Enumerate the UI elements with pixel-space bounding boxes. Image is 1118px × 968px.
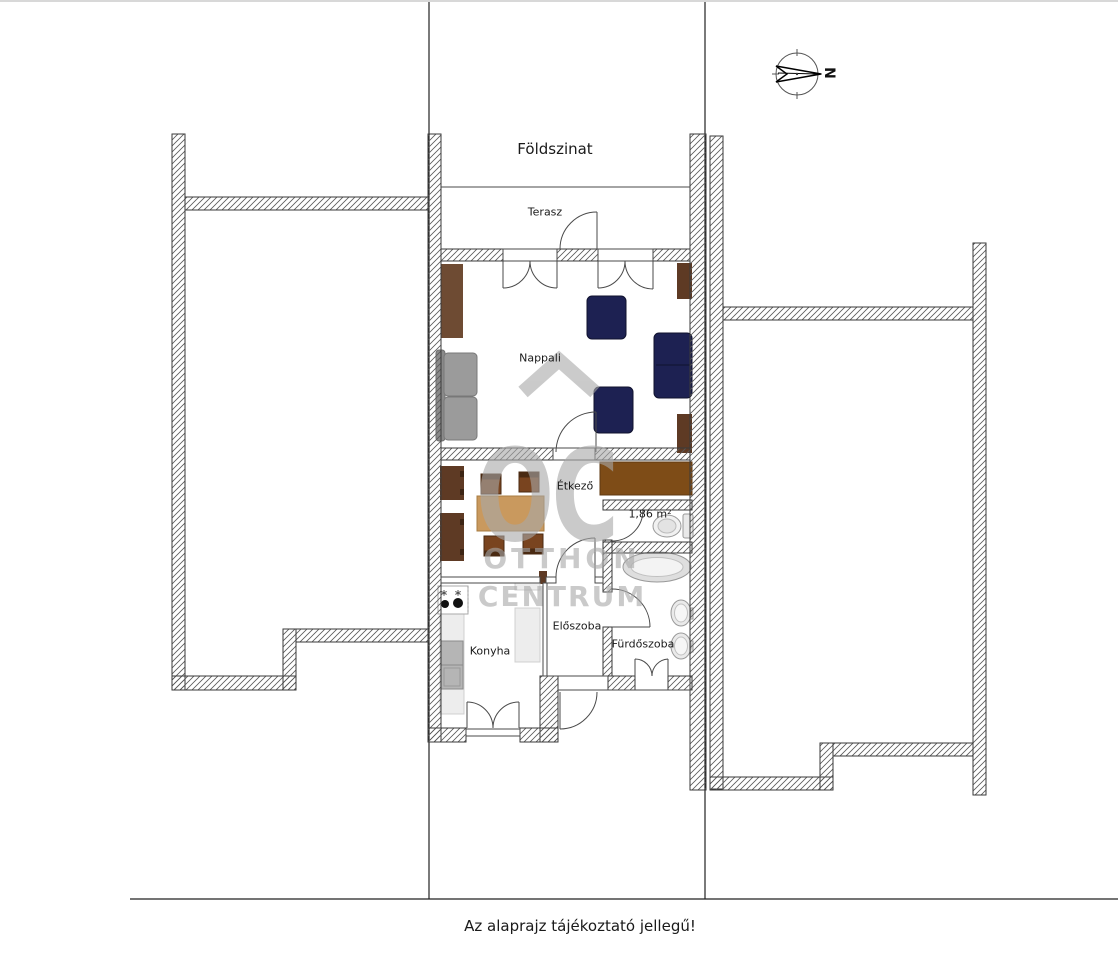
top-edge-strip [0,0,1118,2]
wall [296,629,429,642]
room-label-etkezo: Étkező [557,480,594,493]
room-label-wc-area: 1,86 m² [628,508,671,521]
wall-main-right [690,134,706,790]
wall [608,676,635,690]
compass: N [772,49,837,99]
wall [603,627,612,676]
watermark-line2: CENTRUM [478,580,646,613]
watermark-roof-icon [523,360,595,392]
armchair-navy-top [587,296,626,339]
wall [710,136,723,789]
kitchen-door-threshold [466,729,520,736]
sink-inner [675,604,688,622]
terrace-door [560,212,597,249]
burner-icon [453,598,463,608]
wall [172,134,185,690]
sofa-gray-cushion [444,397,477,440]
entrance-door [560,692,597,729]
watermark-line1: OTTHON [483,542,640,575]
toilet-bowl-inner [658,519,676,533]
right-unit-walls [710,136,986,795]
cabinet-knob [460,519,464,525]
floorplan-canvas: * * [0,0,1118,968]
wall [428,728,466,742]
french-door-left-pair [503,261,557,288]
wall [973,243,986,795]
wall [820,743,833,790]
cabinet-knob [460,549,464,555]
kitchen-counter-right [515,608,540,662]
wall [185,197,429,210]
compass-center-dot [796,73,798,75]
plan-title: Földszinat [517,140,592,158]
room-label-nappali: Nappali [519,352,561,365]
cabinet-knob [460,489,464,495]
bathroom-double-door [635,659,668,676]
room-label-eloszoba: Előszoba [553,620,602,633]
room-label-terasz: Terasz [528,206,562,219]
wall [441,249,503,261]
kitchen-double-door [467,702,519,728]
cabinet-knob [460,471,464,477]
wall-main-left [428,134,441,742]
wall [557,249,598,261]
burner-icon: * [441,588,448,602]
wall [172,676,296,690]
wall [668,676,692,690]
wall [833,743,973,756]
compass-north-label: N [821,67,837,79]
sofa-gray-cushion [444,353,477,396]
disclaimer-text: Az alaprajz tájékoztató jellegű! [464,917,696,935]
wall [710,777,833,790]
wall [283,629,296,690]
sink-inner [675,637,688,655]
burner-icon [441,600,449,608]
room-label-furdoszoba: Fürdőszoba [612,638,675,651]
wall [653,249,690,261]
wall [723,307,973,320]
room-label-konyha: Konyha [470,645,511,658]
wall [520,728,558,742]
french-door-frame [503,249,557,261]
cabinet-living-left [441,264,463,338]
french-door-right-pair [598,261,653,289]
french-door-frame [598,249,653,261]
left-unit-walls [172,134,429,690]
